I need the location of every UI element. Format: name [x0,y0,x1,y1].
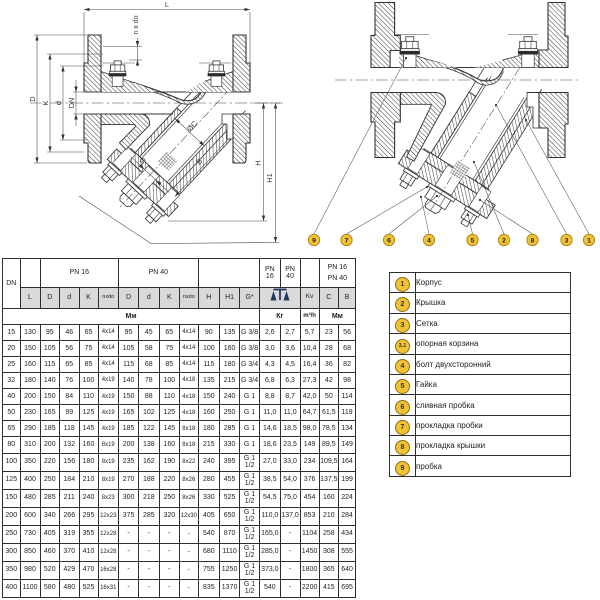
svg-text:4: 4 [427,238,431,245]
svg-text:1: 1 [587,238,591,245]
svg-text:3: 3 [565,238,569,245]
svg-text:L: L [165,0,169,9]
svg-text:5: 5 [471,238,475,245]
svg-text:7: 7 [345,238,349,245]
svg-text:DN: DN [67,98,76,109]
svg-text:8: 8 [531,238,535,245]
svg-text:6: 6 [387,238,391,245]
svg-text:D: D [28,96,37,102]
svg-text:ØC: ØC [185,119,200,134]
svg-text:2: 2 [502,238,506,245]
svg-text:d: d [54,101,63,105]
svg-text:n x do: n x do [133,15,140,34]
svg-text:H1: H1 [265,173,274,183]
svg-text:K: K [41,100,50,105]
svg-text:H: H [254,160,263,165]
svg-text:9: 9 [312,238,316,245]
